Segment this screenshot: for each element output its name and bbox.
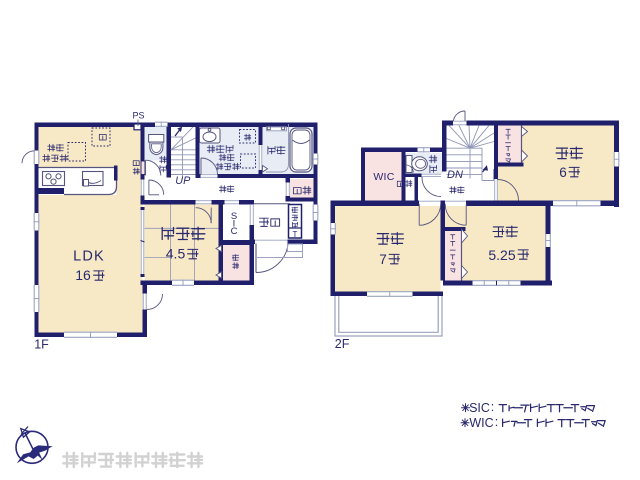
svg-text:WIC: WIC	[469, 416, 493, 430]
svg-text:WIC: WIC	[373, 171, 394, 183]
svg-text:LDK: LDK	[73, 248, 105, 264]
svg-text:SIC: SIC	[469, 401, 490, 415]
svg-text:1F: 1F	[34, 338, 49, 352]
svg-text:PS: PS	[132, 111, 144, 121]
svg-text:4.5: 4.5	[166, 246, 186, 262]
svg-text:5.25: 5.25	[488, 247, 515, 263]
svg-text::: :	[491, 400, 494, 414]
svg-text:2F: 2F	[335, 337, 350, 351]
svg-text::: :	[495, 415, 498, 429]
svg-text:DN: DN	[447, 169, 463, 181]
svg-text:7: 7	[379, 252, 387, 267]
svg-text:16: 16	[75, 267, 91, 283]
svg-text:UP: UP	[175, 175, 191, 187]
svg-text:C: C	[231, 226, 238, 237]
svg-text:6: 6	[559, 165, 567, 180]
svg-text:T: T	[293, 230, 298, 239]
